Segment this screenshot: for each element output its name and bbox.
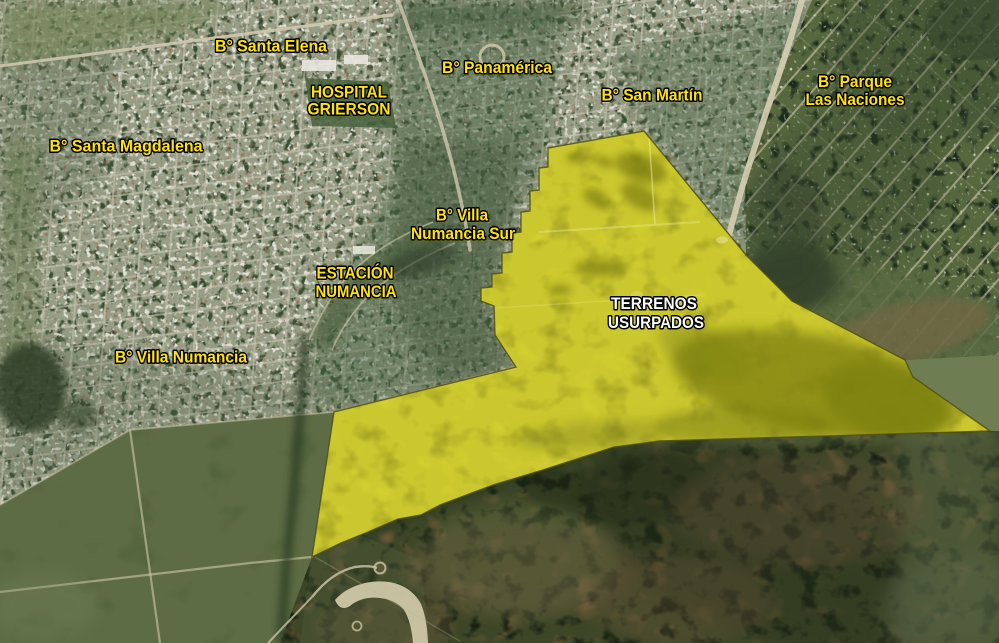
svg-text:B° Santa Magdalena: B° Santa Magdalena [50, 137, 204, 156]
svg-text:ESTACIÓN: ESTACIÓN [317, 264, 394, 283]
svg-text:B° Parque: B° Parque [818, 72, 892, 91]
svg-text:Numancia Sur: Numancia Sur [411, 224, 515, 243]
svg-text:NUMANCIA: NUMANCIA [316, 282, 397, 301]
svg-text:B° Villa: B° Villa [436, 205, 488, 224]
svg-text:USURPADOS: USURPADOS [608, 313, 704, 332]
svg-text:B° Villa Numancia: B° Villa Numancia [115, 347, 247, 366]
svg-text:HOSPITAL: HOSPITAL [311, 82, 387, 101]
svg-text:TERRENOS: TERRENOS [611, 294, 697, 313]
svg-text:GRIERSON: GRIERSON [308, 100, 391, 119]
svg-text:B° Panamérica: B° Panamérica [442, 58, 553, 77]
svg-text:B° San Martín: B° San Martín [602, 85, 703, 104]
svg-text:Las Naciones: Las Naciones [806, 90, 905, 109]
svg-text:B° Santa Elena: B° Santa Elena [215, 37, 328, 56]
